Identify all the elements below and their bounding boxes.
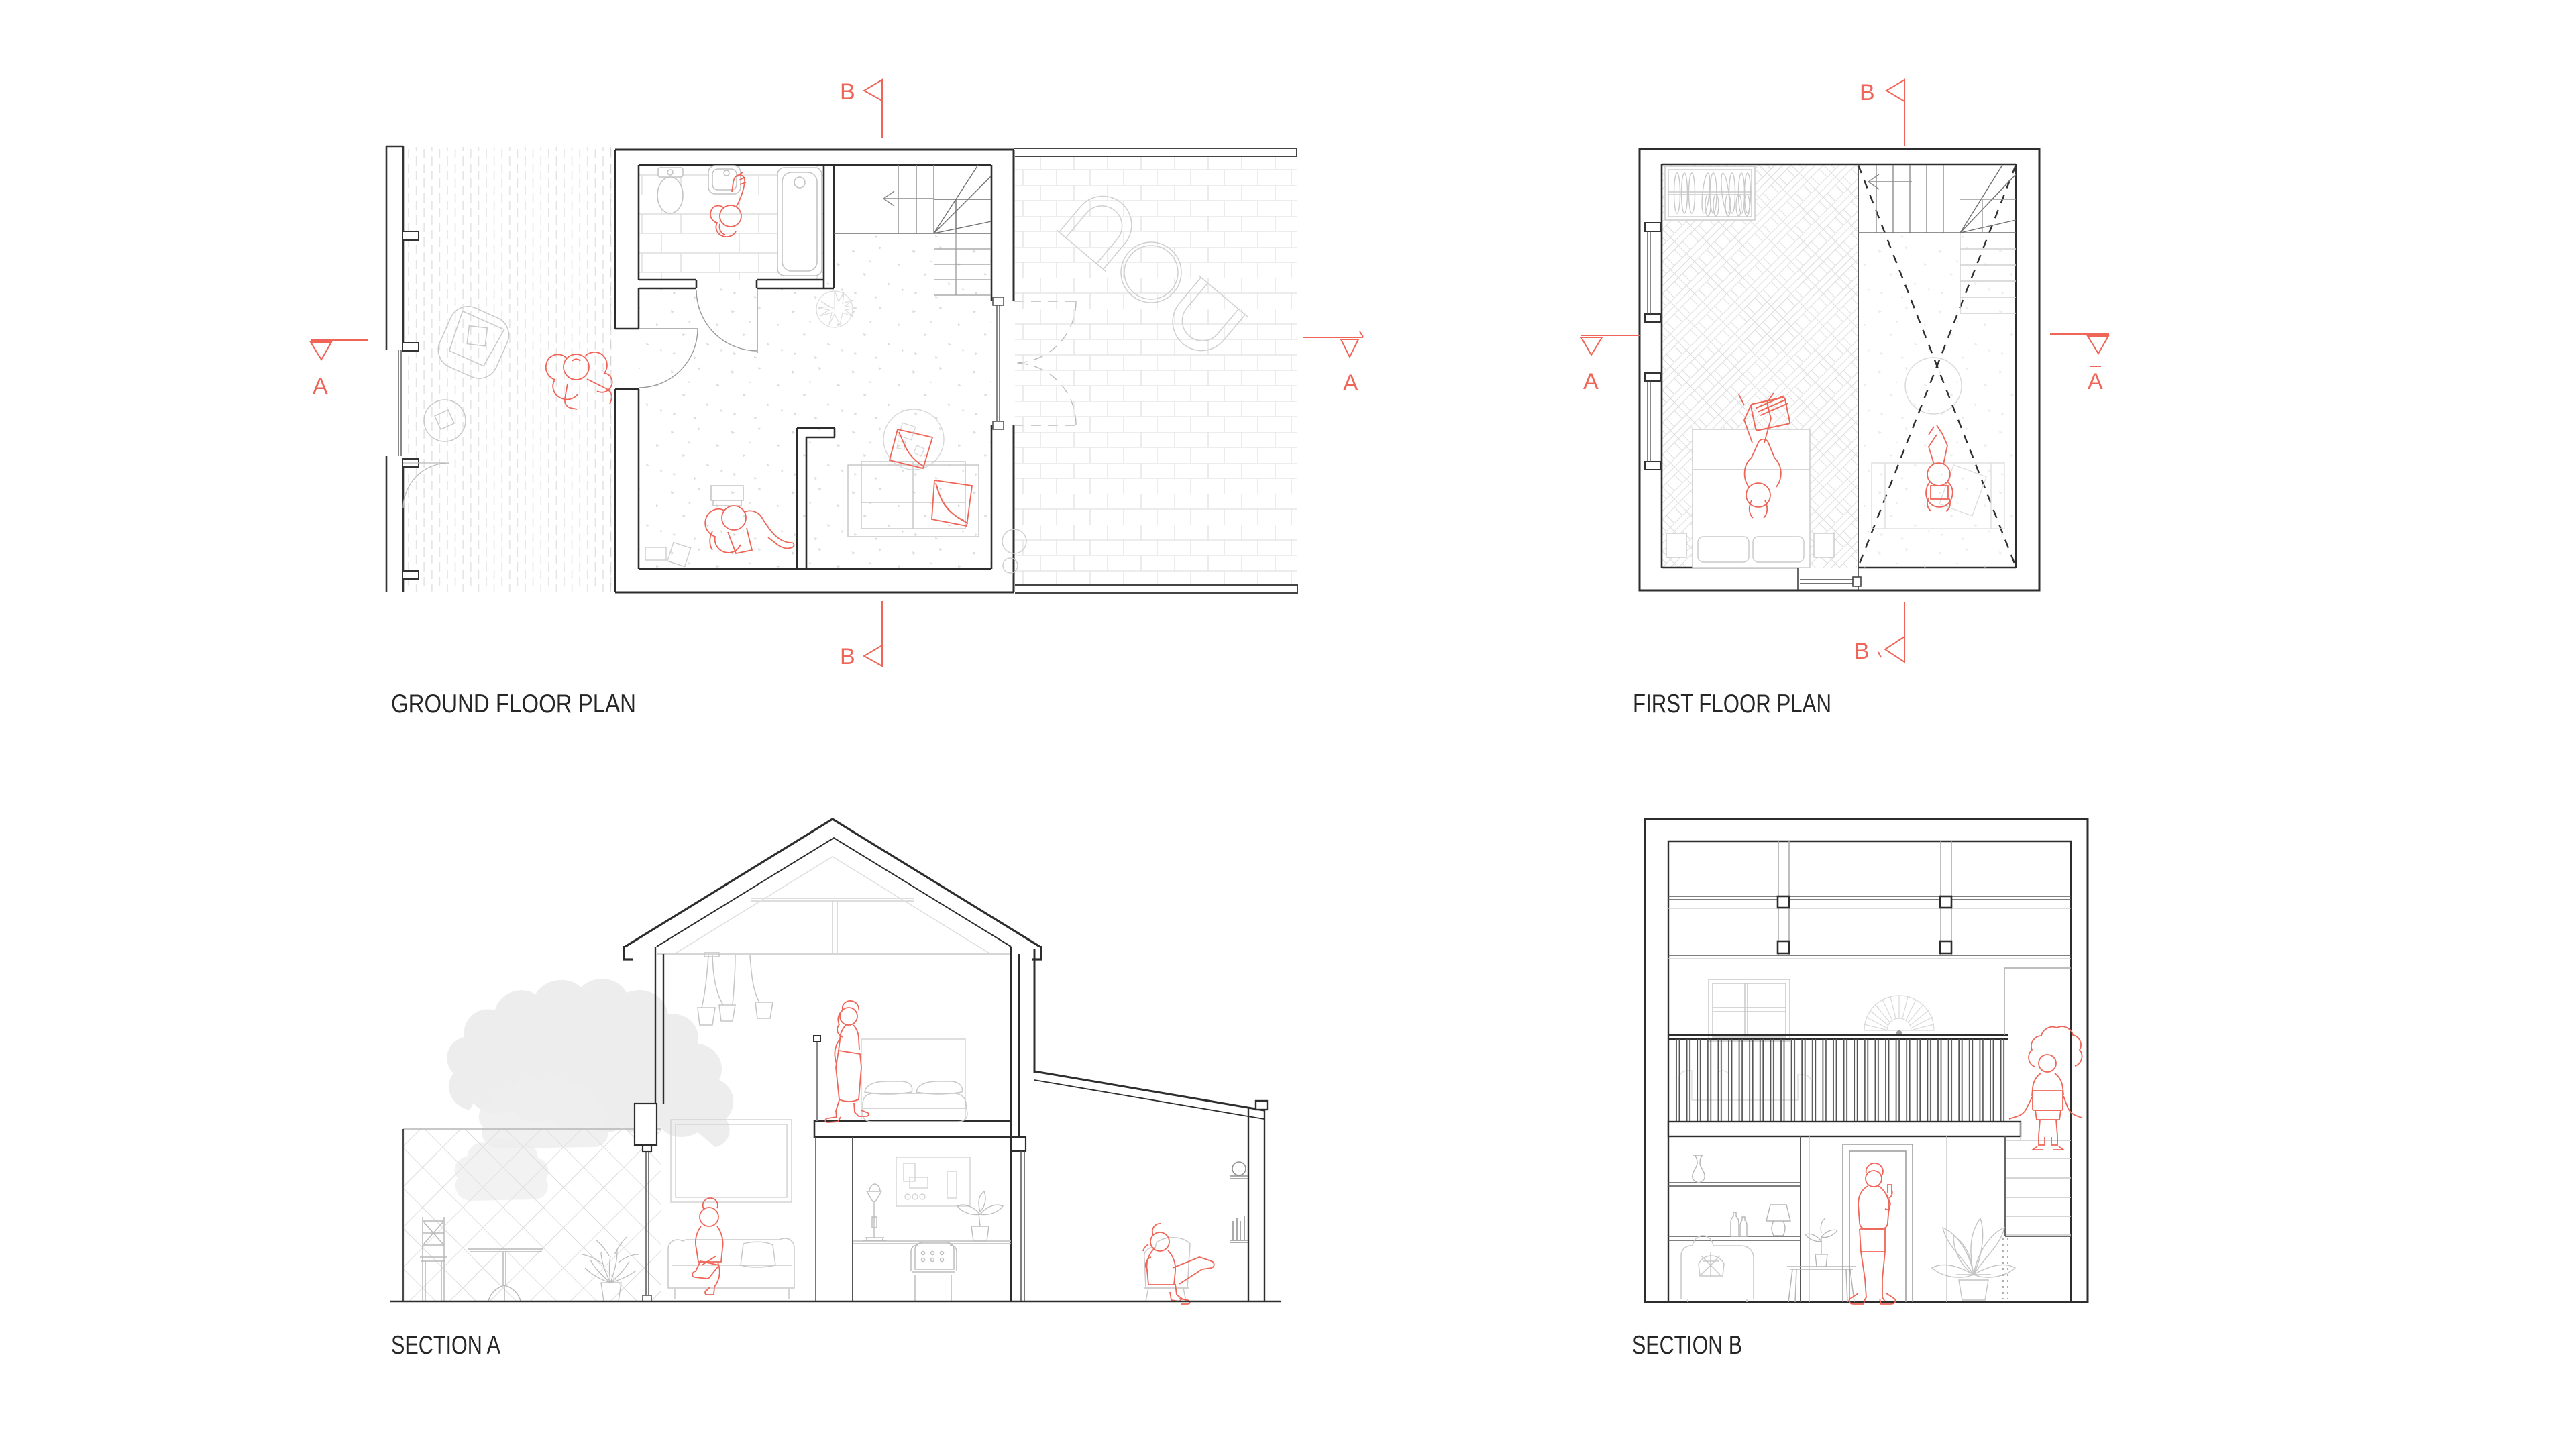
svg-text:B: B <box>840 644 855 669</box>
svg-text:B: B <box>1854 639 1870 664</box>
svg-text:B: B <box>840 79 855 105</box>
svg-text:SECTION A: SECTION A <box>391 1331 500 1360</box>
svg-text:A: A <box>313 374 328 399</box>
svg-text:FIRST FLOOR PLAN: FIRST FLOOR PLAN <box>1633 690 1831 718</box>
svg-text:B: B <box>1860 80 1875 105</box>
svg-text:A: A <box>2088 369 2103 394</box>
svg-text:A: A <box>1583 369 1599 394</box>
svg-text:SECTION B: SECTION B <box>1632 1331 1742 1360</box>
svg-text:GROUND FLOOR PLAN: GROUND FLOOR PLAN <box>391 690 636 718</box>
svg-text:A: A <box>1343 370 1358 396</box>
